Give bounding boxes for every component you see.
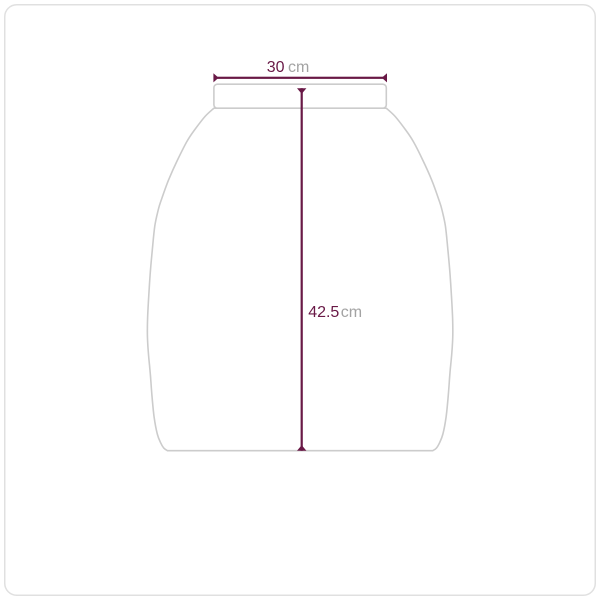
svg-text:30 cm: 30 cm [267,59,310,76]
svg-text:42.5 cm: 42.5 cm [308,304,362,321]
